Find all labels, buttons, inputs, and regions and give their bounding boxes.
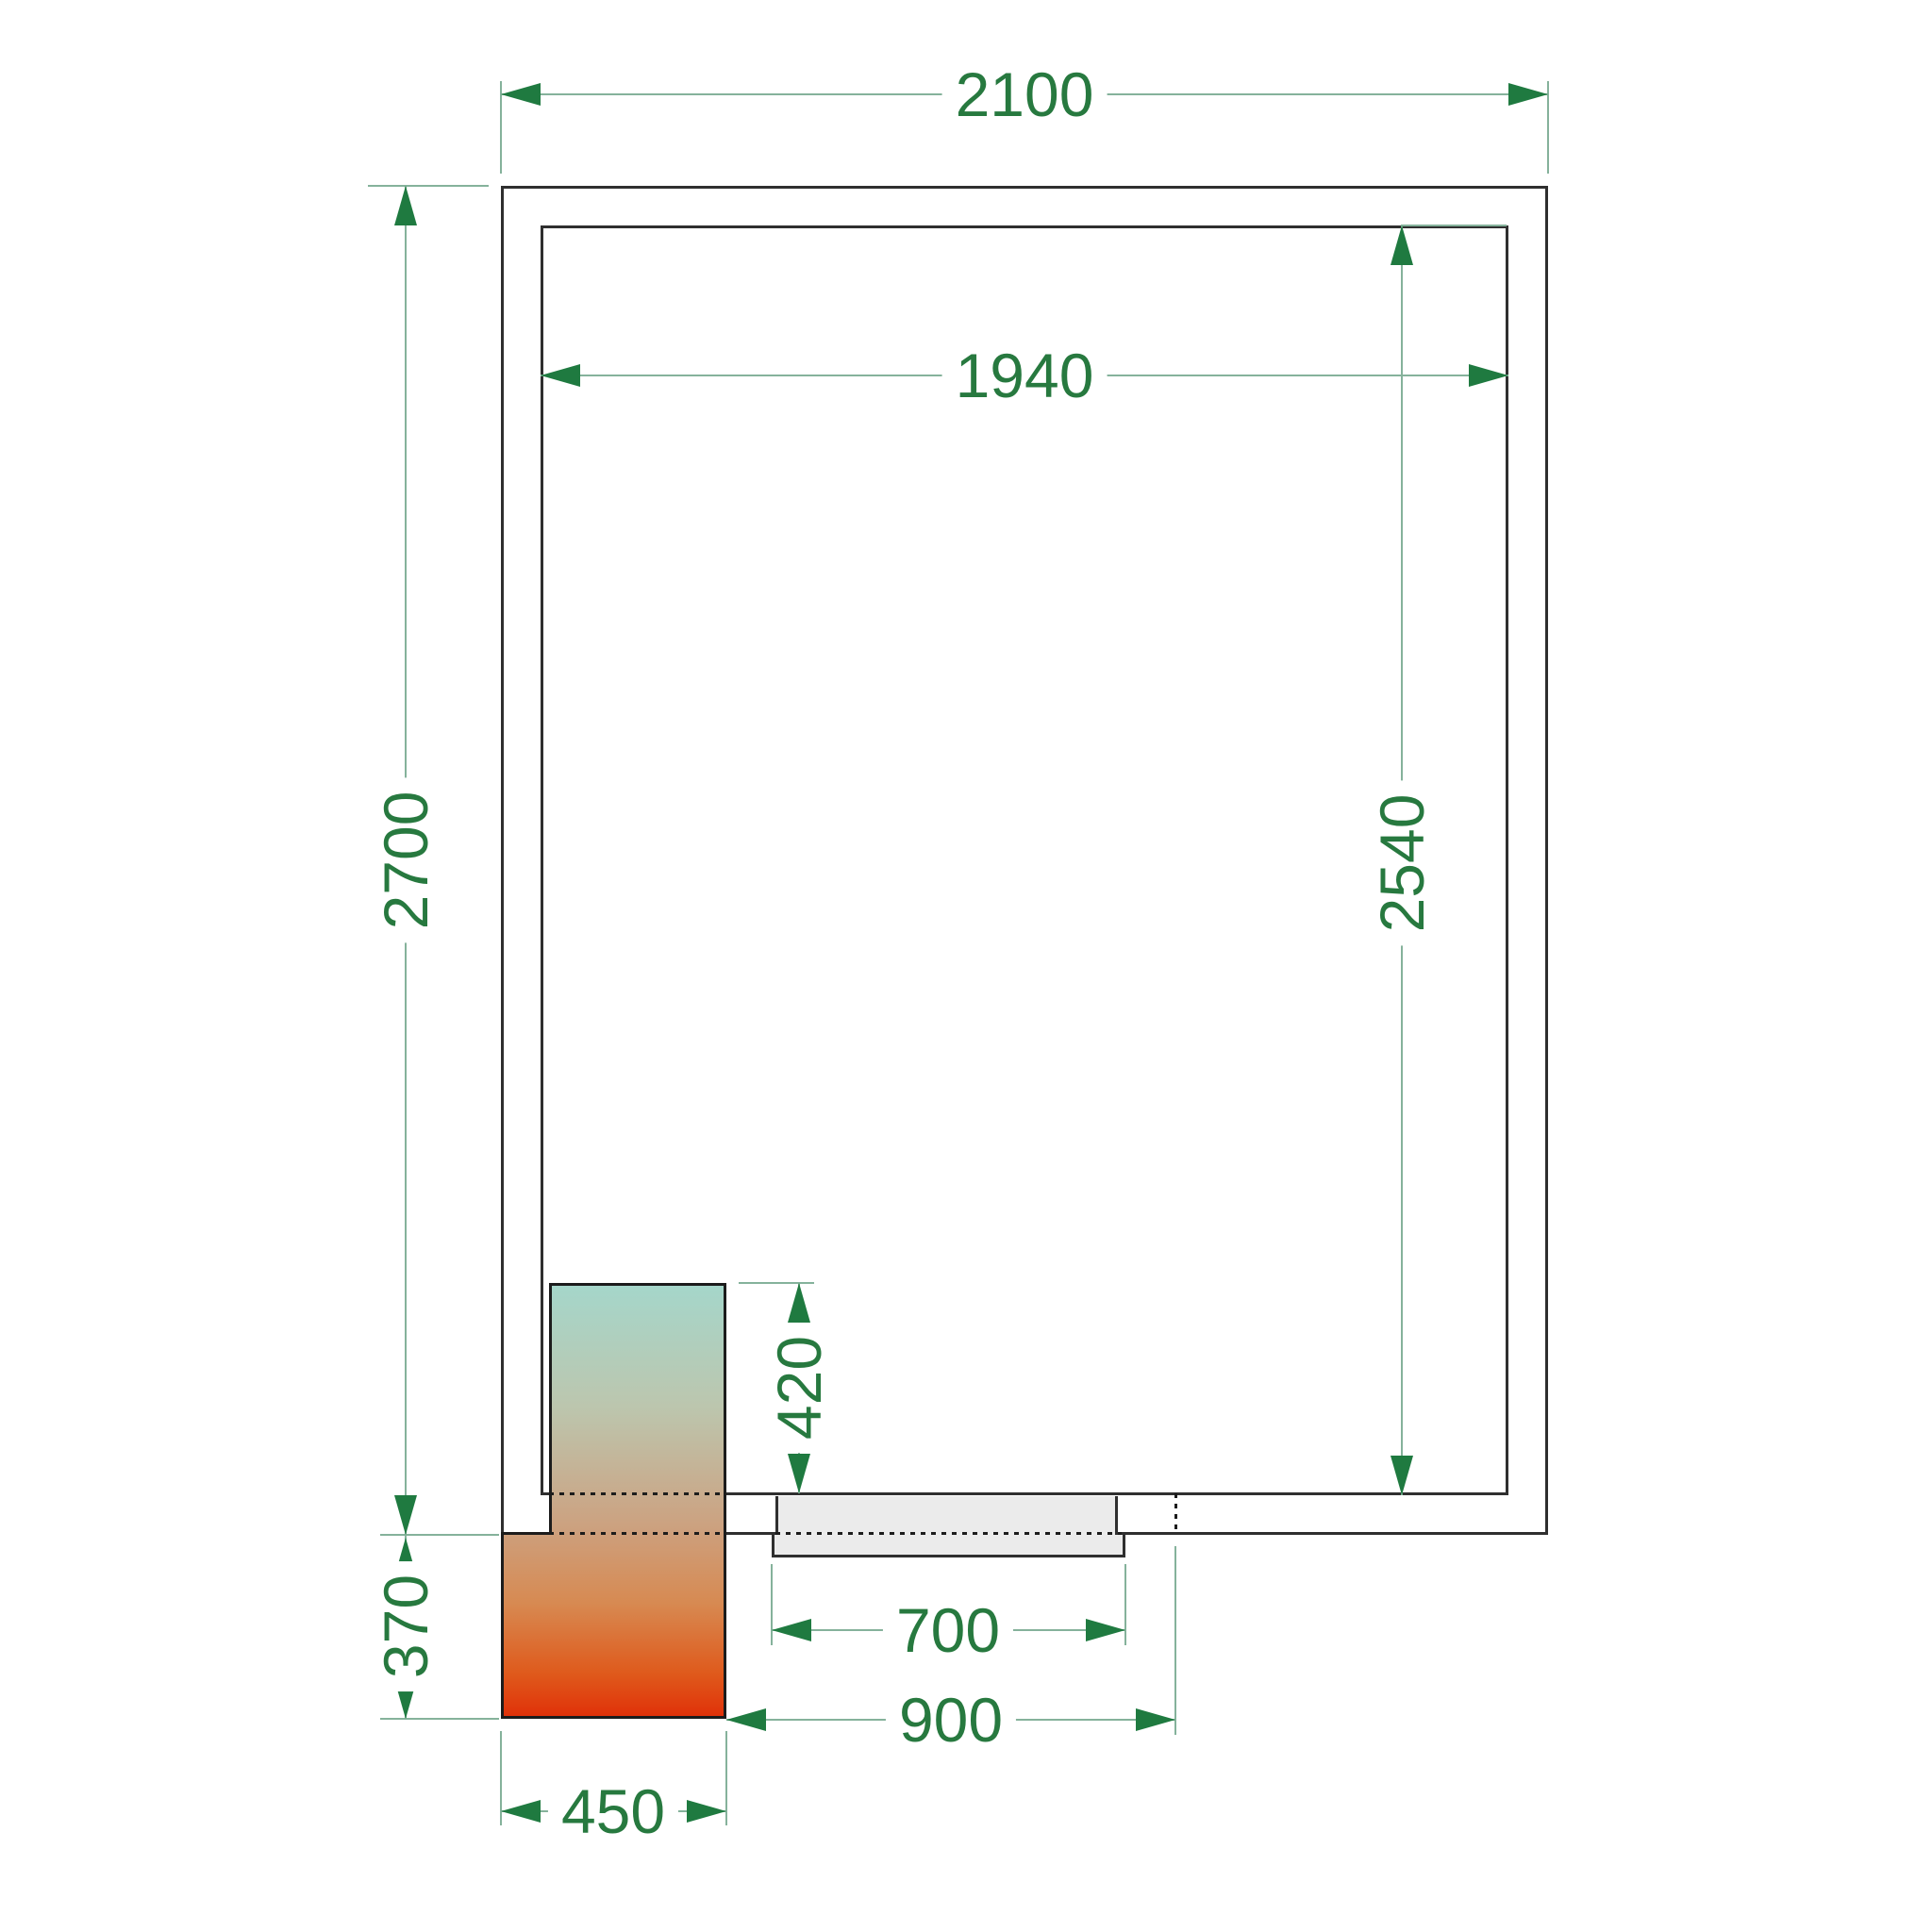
arrowhead-up-icon [394, 186, 417, 225]
dim-door-width-label: 700 [883, 1597, 1013, 1663]
dim-unit-outside-label: 370 [373, 1561, 439, 1691]
arrowhead-right-icon [1136, 1708, 1175, 1731]
dim-unit-inset-label: 420 [766, 1323, 832, 1453]
arrowhead-down-icon [1391, 1456, 1413, 1495]
dim-outer-height-label: 2700 [373, 778, 439, 943]
dim-inner-height-label: 2540 [1369, 781, 1435, 946]
arrowhead-down-icon [788, 1454, 810, 1493]
arrowhead-right-icon [687, 1800, 726, 1823]
cooling-unit-step-edge [501, 1532, 552, 1535]
arrowhead-left-icon [501, 1800, 541, 1823]
door-leaf [772, 1535, 1125, 1557]
arrowhead-left-icon [501, 83, 541, 106]
extension-line [1174, 1546, 1176, 1735]
arrowhead-up-icon [1391, 225, 1413, 265]
arrowhead-up-icon [788, 1283, 810, 1323]
hidden-inner-wall-edge [549, 1492, 726, 1495]
dim-opening-width-label: 900 [886, 1687, 1016, 1753]
arrowhead-left-icon [772, 1619, 811, 1641]
cooling-unit-outer-section [501, 1532, 726, 1719]
arrowhead-left-icon [726, 1708, 766, 1731]
dim-inner-width-label: 1940 [942, 342, 1108, 408]
arrowhead-down-icon [394, 1495, 417, 1535]
dim-outer-width-label: 2100 [942, 61, 1108, 127]
arrowhead-right-icon [1469, 364, 1508, 387]
door-opening [775, 1496, 1118, 1535]
dim-unit-width-label: 450 [548, 1778, 678, 1844]
extension-line [1401, 225, 1507, 226]
extension-line [368, 185, 489, 187]
arrowhead-right-icon [1508, 83, 1548, 106]
hidden-wall-edge-through-door [775, 1532, 1122, 1535]
hidden-outer-wall-edge [549, 1532, 726, 1535]
hidden-door-jamb-edge [1174, 1493, 1177, 1535]
arrowhead-right-icon [1086, 1619, 1125, 1641]
floor-plan-canvas: 2100 1940 2700 2540 420 370 450 700 900 [0, 0, 1932, 1932]
arrowhead-left-icon [541, 364, 580, 387]
